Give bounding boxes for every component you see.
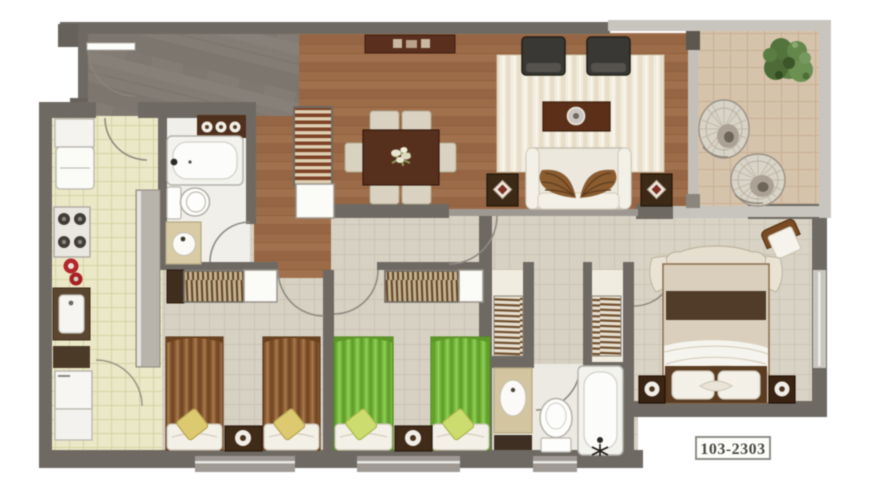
svg-text:103-2303: 103-2303 bbox=[700, 441, 765, 458]
